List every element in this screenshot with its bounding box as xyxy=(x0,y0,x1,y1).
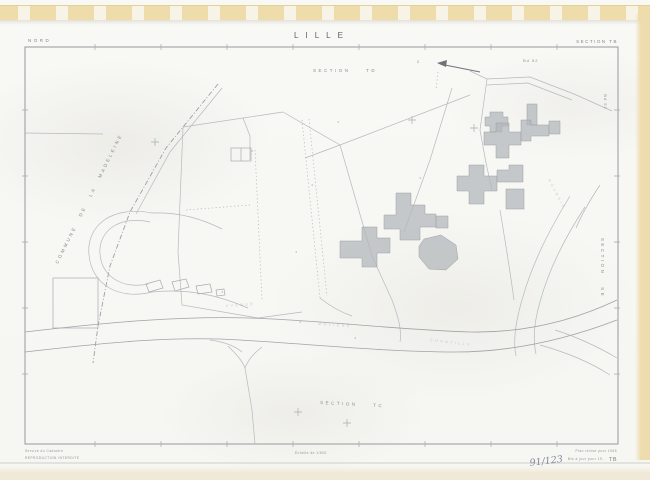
arrow-number: 2 xyxy=(417,59,420,64)
region-label: NORD xyxy=(28,38,51,43)
adjacent-section-right: SECTION SE xyxy=(600,238,605,298)
cadastral-map: NORD LILLE SECTION TB xyxy=(0,0,650,480)
footer-agency-line2: REPRODUCTION INTERDITE xyxy=(25,456,80,460)
frame-ticks-right xyxy=(614,110,620,374)
arrowhead-icon xyxy=(437,60,447,67)
building-cluster-northeast xyxy=(484,104,560,158)
footer-scale: Échelle de 1/500 xyxy=(295,450,327,455)
sheet-section-label: SECTION TB xyxy=(576,39,618,44)
reference-arrow: 2 xyxy=(417,59,480,72)
street-label-moliere: MOLIERE xyxy=(318,322,352,328)
scanned-cadastral-sheet: NORD LILLE SECTION TB xyxy=(0,0,650,480)
commune-boundary xyxy=(93,84,222,363)
right-curved-streets xyxy=(500,185,600,356)
footer-agency-line1: Service du Cadastre xyxy=(25,449,63,453)
building-cluster-center xyxy=(340,193,458,270)
small-buildings-outline xyxy=(146,279,225,296)
adjacent-section-bottom: SECTION TC xyxy=(320,400,384,408)
street-label-avenue: AVENUE xyxy=(226,302,256,308)
building-cluster-middle xyxy=(457,165,524,209)
footer-sheet-code: TB xyxy=(609,457,617,463)
sheet-ref-top-right: Bd 52 xyxy=(523,58,538,63)
loop-road xyxy=(89,211,248,308)
sheet-ref-right-edge: Bd 52 xyxy=(603,94,608,109)
sheet-title: LILLE xyxy=(294,31,350,40)
street-label-roubaix: ROUBAIX xyxy=(547,179,566,211)
adjacent-section-top: SECTION TD xyxy=(313,68,377,73)
street-label-chantilly: CHANTILLY xyxy=(430,338,472,347)
footer-revision-line2: Mis à jour pour 19.. xyxy=(568,457,605,461)
footer-revision-line1: Plan révisé pour 1965 xyxy=(575,449,617,453)
handwritten-reference: 91/123 xyxy=(529,454,564,469)
